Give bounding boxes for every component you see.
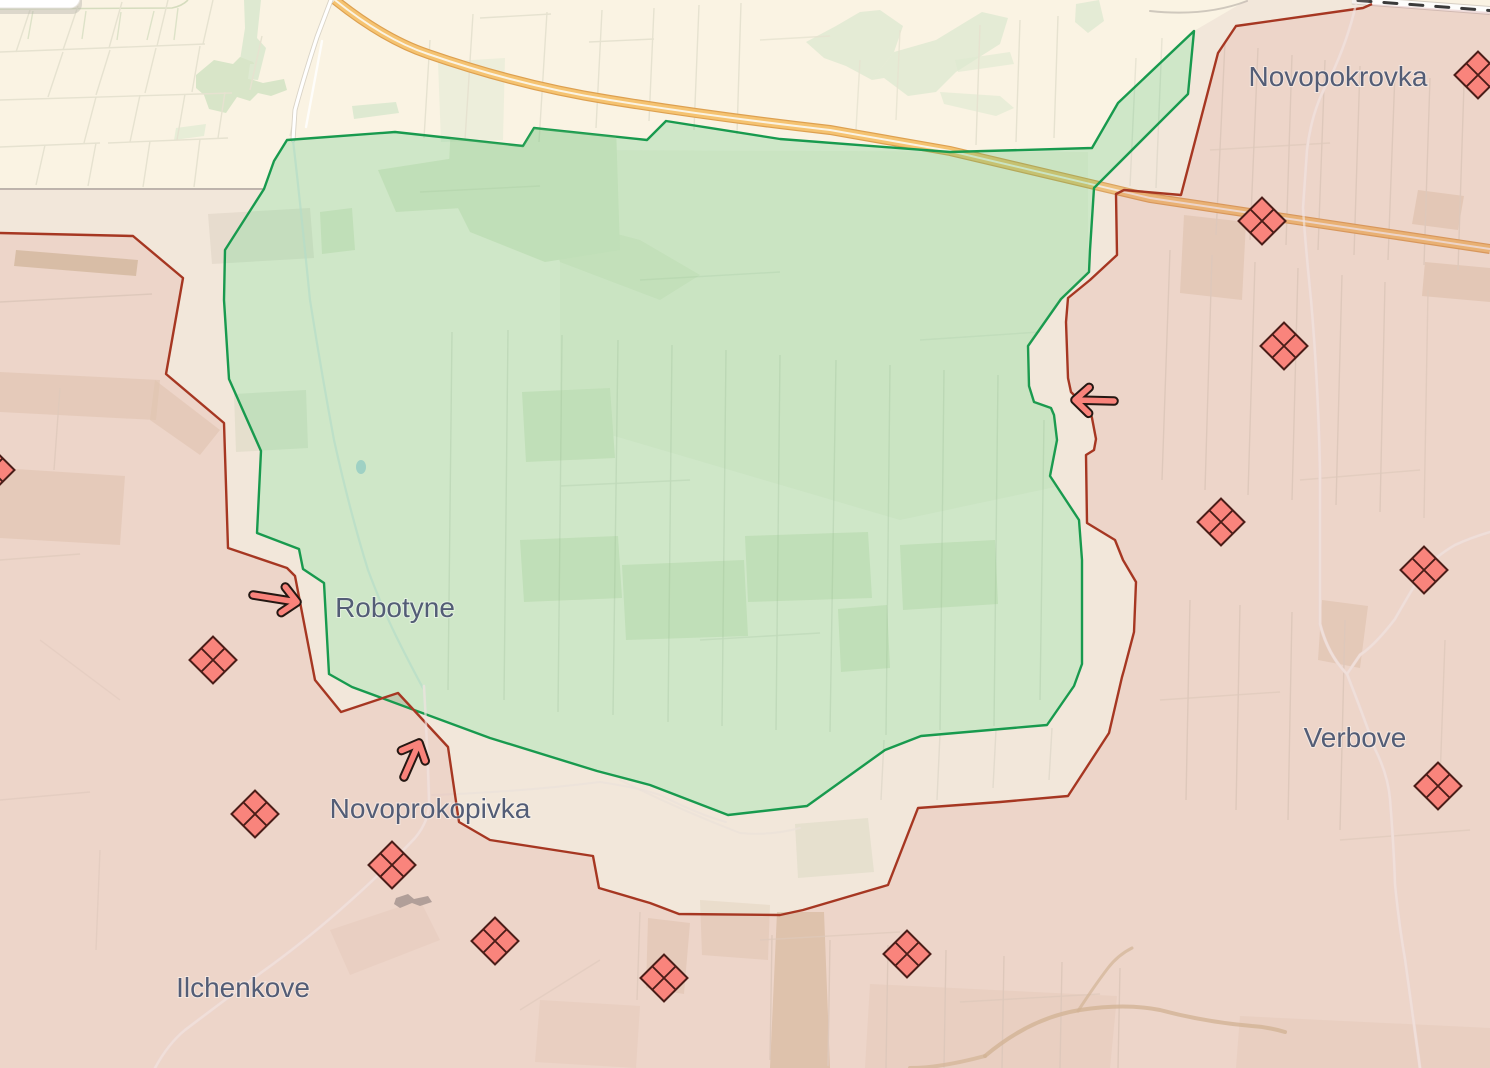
svg-text:Novoprokopivka: Novoprokopivka <box>330 793 531 824</box>
svg-text:Ilchenkove: Ilchenkove <box>176 972 310 1003</box>
svg-text:Verbove: Verbove <box>1304 722 1407 753</box>
svg-text:Robotyne: Robotyne <box>335 592 455 623</box>
svg-text:Novopokrovka: Novopokrovka <box>1249 61 1428 92</box>
